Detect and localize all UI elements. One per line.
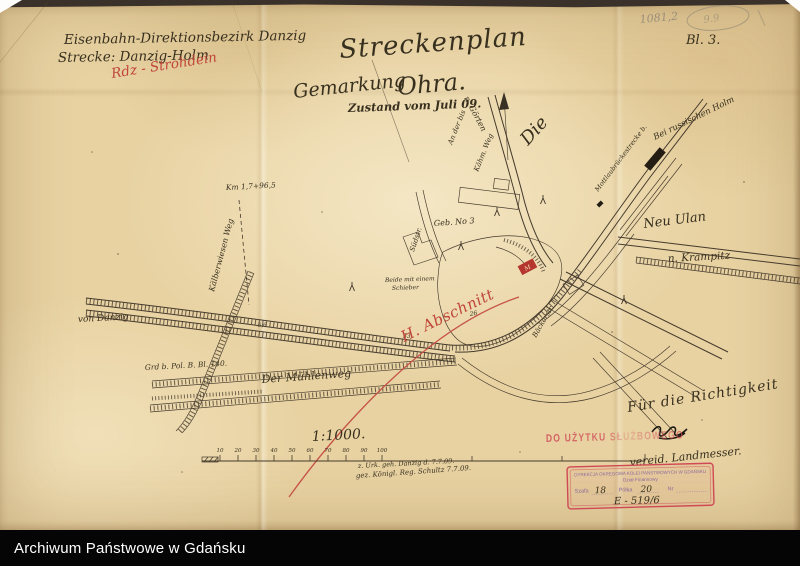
richtigkeit-note: Für die Richtigkeit: [625, 376, 779, 416]
mottlau-line-label: Mottlaubrückestrecke b.: [593, 123, 649, 194]
svg-text:30: 30: [253, 448, 260, 454]
stamp-field-szafa-value: 18: [595, 486, 607, 496]
archive-watermark-bar: Archiwum Państwowe w Gdańsku: [0, 530, 800, 566]
map-subtitle-name: Ohra.: [396, 67, 467, 101]
road-note-2: Kähm. Weg: [472, 132, 495, 174]
map-title: Streckenplan: [338, 22, 527, 65]
pencil-archive-number: 1081,2: [639, 10, 678, 26]
southeast-roads: [458, 272, 728, 438]
red-usage-stamp: DO UŻYTKU SŁUŻBOWEGO: [546, 428, 684, 445]
kaelberwiesen-weg-label: Kälberwiesen Weg: [207, 218, 235, 294]
svg-text:20: 20: [234, 448, 242, 454]
scale-tick-labels: 10 20 30 40 50 60 70 80 90 100: [217, 448, 388, 454]
muehlenweg-label: Der Mühlenweg: [260, 367, 351, 386]
neu-ulan-label: Neu Ulan: [642, 209, 707, 232]
holm-direction-label: Bei russischen Holm: [651, 95, 736, 143]
stamp-field-szafa-label: Szafa: [575, 488, 590, 494]
km-mark-label: Km 1,7+96,5: [225, 180, 277, 192]
svg-text:50: 50: [289, 448, 296, 454]
svg-text:60: 60: [307, 448, 314, 454]
bridge-bar: [644, 147, 666, 171]
ground-register-note: Grd b. Pol. B. Bl. 140.: [145, 359, 228, 372]
red-section-note: H. Abschnitt: [397, 285, 497, 346]
krampitz-direction-label: n. Krampitz: [668, 250, 731, 265]
district-line1: Eisenbahn-Direktionsbezirk Danzig: [63, 28, 307, 48]
scanned-map-page: Eisenbahn-Direktionsbezirk Danzig Streck…: [0, 0, 800, 566]
stamp-handwritten-ref: E - 519/6: [613, 495, 661, 507]
track-number-56: 5,6: [258, 322, 268, 329]
scale-ratio: 1:1000.: [311, 426, 365, 445]
svg-text:90: 90: [361, 448, 368, 454]
stamp-field-polka-label: Półka: [619, 487, 634, 493]
red-area-box: M: [518, 258, 538, 275]
center-loop: [438, 236, 562, 347]
pencil-notes: 1081,2 9.9: [639, 3, 765, 33]
svg-text:70: 70: [325, 448, 332, 454]
track-plan-drawing: Eisenbahn-Direktionsbezirk Danzig Streck…: [0, 0, 800, 530]
river-die-label: Die: [515, 112, 552, 150]
schieber-note-line1: Beide mit einem: [384, 275, 435, 284]
road-note-1: An der bis: [446, 109, 468, 147]
stamp-field-nr-label: Nr: [668, 486, 674, 492]
pencil-tick: [758, 10, 765, 26]
map-subtitle-word: Gemarkung: [292, 69, 407, 103]
archive-name: Archiwum Państwowe w Gdańsku: [0, 540, 246, 557]
suedstrasse-label: Südstr.: [408, 226, 423, 252]
archive-box-stamp: DYREKCJA OKRĘGOWA KOLEI PAŃSTWOWYCH W GD…: [567, 463, 714, 509]
svg-text:40: 40: [270, 448, 278, 454]
svg-text:100: 100: [377, 448, 388, 454]
map-labels: Eisenbahn-Direktionsbezirk Danzig Streck…: [58, 22, 736, 386]
pencil-circled-number: 9.9: [703, 13, 721, 26]
svg-text:80: 80: [343, 448, 350, 454]
schieber-note-line2: Schieber: [392, 284, 420, 292]
svg-text:10: 10: [217, 448, 224, 454]
building-no3-label: Geb. No 3: [434, 216, 475, 228]
sheet-number: Bl. 3.: [685, 33, 720, 48]
stamp-department-line: Dział Finansowy: [623, 477, 659, 484]
certification-signatures: Für die Richtigkeit vereid. Landmesser.: [625, 376, 779, 469]
stamp-field-polka-value: 20: [639, 485, 652, 495]
von-danzig-label: von Danzig: [78, 312, 130, 325]
